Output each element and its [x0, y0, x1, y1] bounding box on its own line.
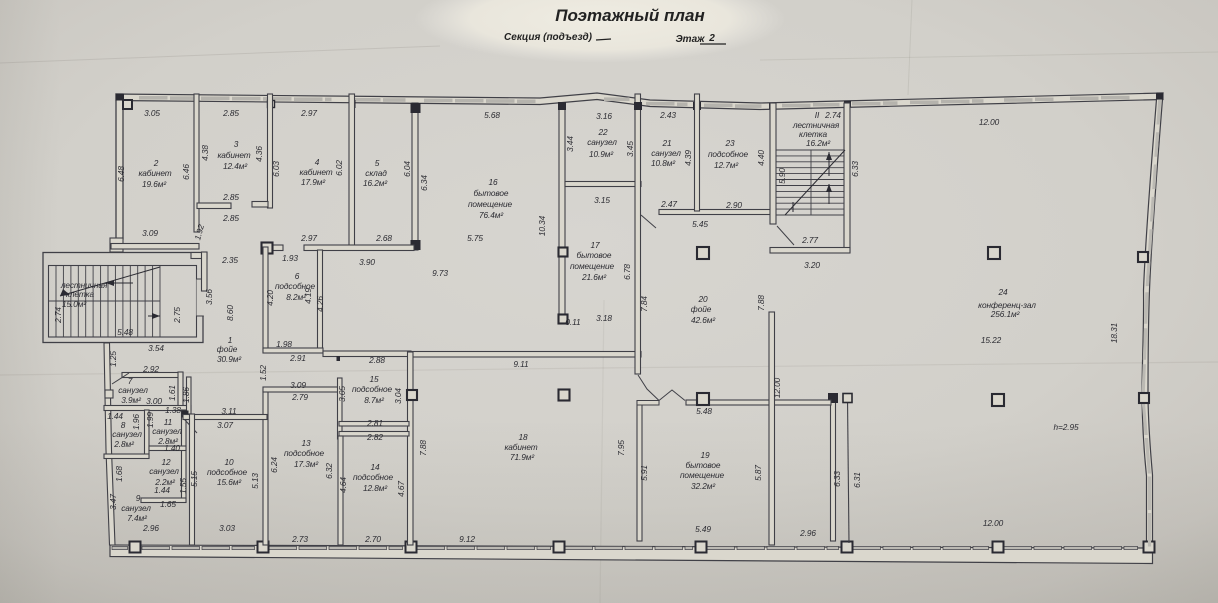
svg-text:3.00: 3.00: [146, 396, 162, 406]
svg-text:23: 23: [724, 138, 735, 148]
svg-text:5.90: 5.90: [777, 168, 787, 184]
svg-text:5.15: 5.15: [189, 471, 199, 487]
svg-text:5.75: 5.75: [467, 233, 483, 243]
svg-text:17: 17: [590, 240, 600, 250]
svg-text:6.04: 6.04: [402, 161, 412, 177]
svg-text:Поэтажный план: Поэтажный план: [555, 6, 704, 25]
svg-text:256.1м²: 256.1м²: [990, 309, 1020, 319]
svg-text:1.25: 1.25: [108, 351, 118, 367]
svg-text:5.48: 5.48: [696, 406, 712, 416]
svg-text:6.78: 6.78: [622, 264, 632, 280]
svg-text:9.12: 9.12: [459, 534, 475, 544]
svg-text:3.03: 3.03: [219, 523, 235, 533]
svg-text:5.87: 5.87: [753, 465, 763, 481]
svg-text:2.96: 2.96: [799, 528, 816, 538]
svg-text:15: 15: [369, 374, 379, 384]
svg-text:6.46: 6.46: [181, 164, 191, 180]
svg-text:2.77: 2.77: [801, 235, 818, 245]
svg-text:15.0м²: 15.0м²: [62, 299, 86, 309]
svg-text:6.24: 6.24: [269, 457, 279, 473]
svg-text:8.60: 8.60: [225, 305, 235, 321]
svg-text:подсобное: подсобное: [352, 384, 393, 394]
svg-text:II: II: [815, 110, 820, 120]
svg-text:2.35: 2.35: [221, 255, 238, 265]
svg-text:2.70: 2.70: [364, 534, 381, 544]
svg-text:подсобное: подсобное: [207, 467, 248, 477]
svg-text:18: 18: [518, 432, 528, 442]
svg-text:1.86: 1.86: [181, 387, 191, 403]
svg-text:3.9м²: 3.9м²: [121, 395, 141, 405]
svg-text:5.48: 5.48: [117, 327, 133, 337]
svg-text:21: 21: [661, 138, 671, 148]
svg-text:6.33: 6.33: [832, 471, 842, 487]
svg-text:2.97: 2.97: [300, 108, 317, 118]
svg-text:склад: склад: [365, 168, 387, 178]
svg-text:17.3м²: 17.3м²: [294, 459, 318, 469]
svg-text:помещение: помещение: [468, 199, 513, 209]
svg-text:2.91: 2.91: [289, 353, 306, 363]
svg-text:санузел: санузел: [587, 137, 617, 147]
svg-text:1.61: 1.61: [167, 385, 177, 401]
svg-text:12.8м²: 12.8м²: [363, 483, 387, 493]
svg-text:3.07: 3.07: [217, 420, 233, 430]
svg-text:5.68: 5.68: [484, 110, 500, 120]
svg-text:3.11: 3.11: [221, 406, 236, 416]
svg-text:2.47: 2.47: [660, 199, 677, 209]
svg-text:2.88: 2.88: [368, 355, 385, 365]
svg-text:4.20: 4.20: [265, 290, 275, 306]
svg-text:3.16: 3.16: [596, 111, 612, 121]
svg-text:4.26: 4.26: [315, 296, 325, 312]
svg-text:15.6м²: 15.6м²: [217, 477, 241, 487]
svg-text:9: 9: [136, 493, 141, 503]
svg-text:12.4м²: 12.4м²: [223, 161, 247, 171]
svg-text:2.85: 2.85: [222, 192, 239, 202]
svg-text:7.95: 7.95: [616, 440, 626, 456]
svg-text:6.48: 6.48: [116, 166, 126, 182]
svg-text:бытовое: бытовое: [686, 460, 721, 470]
svg-text:6.33: 6.33: [850, 161, 860, 177]
svg-text:10.9м²: 10.9м²: [589, 149, 613, 159]
svg-text:4.19: 4.19: [303, 288, 313, 304]
svg-text:2: 2: [708, 33, 715, 44]
svg-text:6.32: 6.32: [324, 463, 334, 479]
svg-text:h=2.95: h=2.95: [1053, 422, 1078, 432]
svg-text:1.40: 1.40: [164, 443, 180, 453]
svg-text:6.03: 6.03: [271, 161, 281, 177]
svg-text:1.65: 1.65: [160, 499, 176, 509]
svg-text:9.11: 9.11: [513, 359, 528, 369]
svg-text:3.15: 3.15: [594, 195, 610, 205]
svg-text:18.31: 18.31: [1109, 323, 1119, 343]
svg-text:клетка: клетка: [66, 289, 94, 299]
svg-text:2.73: 2.73: [291, 534, 308, 544]
svg-text:8.7м²: 8.7м²: [364, 395, 384, 405]
svg-text:30.9м²: 30.9м²: [217, 354, 241, 364]
svg-text:кабинет: кабинет: [217, 150, 250, 160]
svg-text:6.31: 6.31: [852, 472, 862, 488]
svg-text:2.85: 2.85: [222, 213, 239, 223]
svg-text:1.44: 1.44: [154, 485, 170, 495]
svg-text:6: 6: [295, 271, 300, 281]
svg-text:3.05: 3.05: [144, 108, 160, 118]
svg-text:16: 16: [488, 177, 498, 187]
svg-text:3.09: 3.09: [290, 380, 306, 390]
svg-text:20: 20: [697, 294, 708, 304]
svg-text:14: 14: [370, 462, 380, 472]
svg-text:бытовое: бытовое: [577, 250, 612, 260]
svg-text:42.6м²: 42.6м²: [691, 315, 715, 325]
svg-text:5.13: 5.13: [250, 473, 260, 489]
svg-text:4.39: 4.39: [683, 150, 693, 166]
svg-text:3: 3: [234, 139, 239, 149]
svg-text:санузел: санузел: [121, 503, 151, 513]
svg-text:6.34: 6.34: [419, 175, 429, 191]
svg-text:12.00: 12.00: [772, 377, 782, 398]
svg-text:16.2м²: 16.2м²: [806, 138, 830, 148]
svg-text:2: 2: [153, 158, 159, 168]
svg-text:24: 24: [997, 287, 1008, 297]
svg-text:2.79: 2.79: [291, 392, 308, 402]
svg-text:0.11: 0.11: [565, 317, 580, 327]
svg-text:5.49: 5.49: [695, 524, 711, 534]
svg-text:3.04: 3.04: [393, 388, 403, 404]
svg-text:3.05: 3.05: [337, 386, 347, 402]
svg-text:санузел: санузел: [152, 426, 182, 436]
svg-text:2.74: 2.74: [824, 110, 841, 120]
svg-text:4.40: 4.40: [756, 150, 766, 166]
svg-text:2.43: 2.43: [659, 110, 676, 120]
svg-text:2.75: 2.75: [172, 307, 182, 324]
svg-text:2.74: 2.74: [53, 307, 63, 324]
svg-text:10: 10: [224, 457, 234, 467]
svg-text:кабинет: кабинет: [299, 167, 332, 177]
svg-text:1.55: 1.55: [178, 478, 188, 494]
svg-text:1.38: 1.38: [165, 405, 181, 415]
svg-text:4.36: 4.36: [254, 146, 264, 162]
svg-text:помещение: помещение: [570, 261, 615, 271]
svg-text:2.92: 2.92: [142, 364, 159, 374]
svg-text:76.4м²: 76.4м²: [479, 210, 503, 220]
svg-text:санузел: санузел: [118, 385, 148, 395]
svg-text:2.90: 2.90: [725, 200, 742, 210]
svg-text:3.45: 3.45: [625, 141, 635, 157]
svg-text:10.34: 10.34: [537, 215, 547, 236]
svg-text:3.09: 3.09: [142, 228, 158, 238]
svg-text:фойе: фойе: [217, 344, 238, 354]
svg-text:15.22: 15.22: [981, 335, 1002, 345]
svg-text:17.9м²: 17.9м²: [301, 177, 325, 187]
svg-text:19.6м²: 19.6м²: [142, 179, 166, 189]
svg-text:2.68: 2.68: [375, 233, 392, 243]
svg-text:4.38: 4.38: [200, 145, 210, 161]
svg-text:подсобное: подсобное: [284, 448, 325, 458]
svg-text:7.88: 7.88: [756, 295, 766, 311]
svg-text:4: 4: [315, 157, 320, 167]
svg-text:1.96: 1.96: [131, 414, 141, 430]
svg-text:19: 19: [700, 450, 710, 460]
svg-text:5.45: 5.45: [692, 219, 708, 229]
svg-text:2.96: 2.96: [142, 523, 159, 533]
svg-text:3.20: 3.20: [804, 260, 820, 270]
svg-text:3.47: 3.47: [108, 494, 118, 510]
svg-text:3.44: 3.44: [565, 136, 575, 152]
svg-text:фойе: фойе: [691, 304, 712, 314]
svg-text:3.18: 3.18: [596, 313, 612, 323]
svg-text:санузел: санузел: [149, 466, 179, 476]
svg-text:2.97: 2.97: [300, 233, 317, 243]
svg-text:2.8м²: 2.8м²: [113, 439, 134, 449]
svg-text:Этаж: Этаж: [675, 34, 705, 45]
svg-text:3.54: 3.54: [148, 343, 164, 353]
svg-text:12.00: 12.00: [983, 518, 1004, 528]
svg-text:4.67: 4.67: [396, 481, 406, 497]
svg-text:16.2м²: 16.2м²: [363, 178, 387, 188]
svg-text:1.68: 1.68: [114, 466, 124, 482]
svg-text:2.82: 2.82: [366, 432, 383, 442]
svg-text:3.90: 3.90: [359, 257, 375, 267]
svg-text:1.98: 1.98: [276, 339, 292, 349]
svg-text:3.56: 3.56: [204, 289, 214, 305]
svg-text:1.93: 1.93: [282, 253, 298, 263]
svg-text:12.00: 12.00: [979, 117, 1000, 127]
svg-text:помещение: помещение: [680, 470, 725, 480]
svg-text:Секция (подъезд): Секция (подъезд): [504, 32, 593, 43]
svg-text:10.8м²: 10.8м²: [651, 158, 675, 168]
svg-text:бытовое: бытовое: [474, 188, 509, 198]
svg-text:7.88: 7.88: [418, 440, 428, 456]
svg-text:кабинет: кабинет: [138, 168, 171, 178]
svg-text:32.2м²: 32.2м²: [691, 481, 715, 491]
svg-text:5.91: 5.91: [639, 465, 649, 481]
svg-text:13: 13: [301, 438, 311, 448]
svg-text:9.73: 9.73: [432, 268, 448, 278]
svg-text:1.99: 1.99: [145, 412, 155, 428]
svg-text:7.84: 7.84: [639, 296, 649, 312]
svg-text:21.6м²: 21.6м²: [581, 272, 606, 282]
svg-text:22: 22: [597, 127, 608, 137]
svg-text:7.4м²: 7.4м²: [127, 513, 147, 523]
svg-text:4.64: 4.64: [338, 477, 348, 493]
svg-text:5: 5: [375, 158, 380, 168]
svg-text:1.44: 1.44: [107, 411, 123, 421]
svg-text:71.9м²: 71.9м²: [510, 452, 534, 462]
svg-text:подсобное: подсобное: [708, 149, 749, 159]
svg-text:12.7м²: 12.7м²: [714, 160, 738, 170]
svg-text:санузел: санузел: [651, 148, 681, 158]
svg-text:подсобное: подсобное: [353, 472, 394, 482]
svg-text:2.81: 2.81: [366, 418, 383, 428]
svg-text:6.02: 6.02: [334, 160, 344, 176]
svg-text:кабинет: кабинет: [504, 442, 537, 452]
svg-text:1.52: 1.52: [258, 365, 268, 381]
svg-text:2.85: 2.85: [222, 108, 239, 118]
